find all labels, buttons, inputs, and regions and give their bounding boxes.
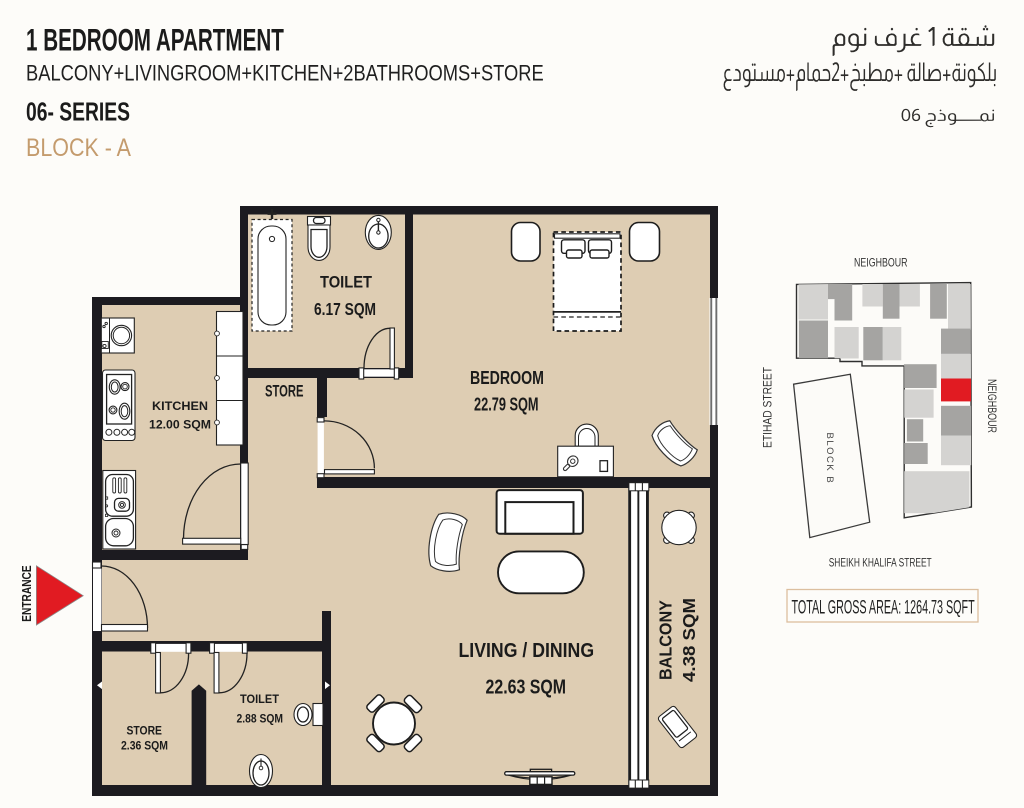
svg-text:6.17 SQM: 6.17 SQM xyxy=(314,300,376,320)
svg-text:22.63 SQM: 22.63 SQM xyxy=(486,675,566,698)
svg-text:2.36 SQM: 2.36 SQM xyxy=(121,740,168,753)
svg-text:2.88 SQM: 2.88 SQM xyxy=(237,713,284,726)
svg-text:TOILET: TOILET xyxy=(320,273,373,292)
svg-text:12.00 SQM: 12.00 SQM xyxy=(149,417,211,432)
svg-text:ETIHAD STREET: ETIHAD STREET xyxy=(761,367,774,448)
svg-text:TOTAL GROSS AREA: 1264.73 SQFT: TOTAL GROSS AREA: 1264.73 SQFT xyxy=(792,597,975,618)
svg-text:BALCONY+LIVINGROOM+KITCHEN+2BA: BALCONY+LIVINGROOM+KITCHEN+2BATHROOMS+ST… xyxy=(26,61,544,86)
svg-text:06- SERIES: 06- SERIES xyxy=(26,97,130,126)
svg-text:SHEIKH KHALIFA STREET: SHEIKH KHALIFA STREET xyxy=(829,557,932,570)
svg-text:1 BEDROOM APARTMENT: 1 BEDROOM APARTMENT xyxy=(26,21,284,57)
svg-text:BLOCK B: BLOCK B xyxy=(824,433,835,485)
svg-text:BEDROOM: BEDROOM xyxy=(470,369,544,389)
svg-text:TOILET: TOILET xyxy=(240,693,279,706)
svg-text:4.38 SQM: 4.38 SQM xyxy=(679,598,699,682)
svg-text:BLOCK - A: BLOCK - A xyxy=(26,134,131,162)
svg-text:STORE: STORE xyxy=(265,381,303,400)
svg-text:22.79 SQM: 22.79 SQM xyxy=(474,395,539,415)
svg-text:BALCONY: BALCONY xyxy=(656,600,675,680)
svg-text:ENTRANCE: ENTRANCE xyxy=(21,565,35,622)
svg-text:NEIGHBOUR: NEIGHBOUR xyxy=(854,257,907,270)
svg-text:LIVING / DINING: LIVING / DINING xyxy=(459,639,595,662)
svg-text:STORE: STORE xyxy=(127,725,162,738)
svg-text:NEIGHBOUR: NEIGHBOUR xyxy=(985,379,998,433)
svg-text:KITCHEN: KITCHEN xyxy=(152,399,208,413)
